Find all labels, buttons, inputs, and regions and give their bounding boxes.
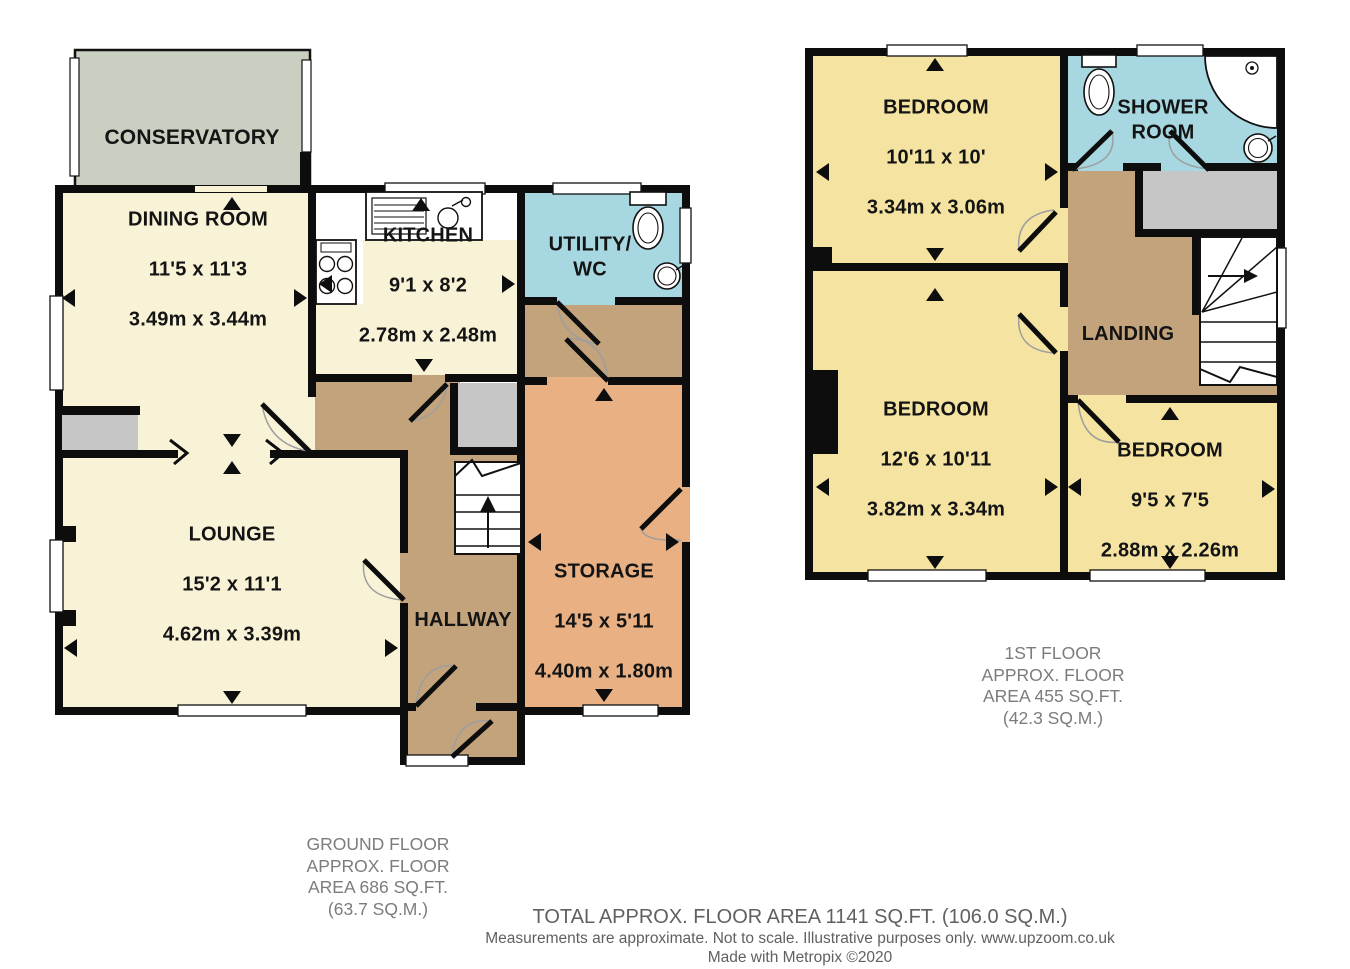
room-name: BEDROOM: [867, 96, 1005, 121]
room-dim-imperial: 14'5 x 5'11: [535, 610, 673, 635]
room-name: STORAGE: [535, 560, 673, 585]
room-dim-metric: 4.40m x 1.80m: [535, 660, 673, 685]
inner-hall-by-kitchen: [315, 375, 460, 457]
room-dim-imperial: 12'6 x 10'11: [867, 448, 1005, 473]
utility-top-window: [553, 183, 641, 194]
stairs-down-icon: [1200, 237, 1277, 385]
room-label-bedroom-1: BEDROOM 10'11 x 10' 3.34m x 3.06m: [867, 71, 1005, 246]
room-dim-imperial: 9'1 x 8'2: [359, 274, 497, 299]
room-label-shower-room: SHOWER ROOM: [1117, 71, 1208, 146]
footer: TOTAL APPROX. FLOOR AREA 1141 SQ.FT. (10…: [485, 904, 1114, 967]
room-name: BEDROOM: [867, 398, 1005, 423]
room-label-landing: LANDING: [1082, 297, 1175, 347]
room-name: DINING ROOM: [128, 208, 268, 233]
room-label-kitchen: KITCHEN 9'1 x 8'2 2.78m x 2.48m: [359, 199, 497, 374]
room-dim-metric: 4.62m x 3.39m: [163, 623, 301, 648]
room-dim-metric: 3.82m x 3.34m: [867, 498, 1005, 523]
room-dim-metric: 2.88m x 2.26m: [1101, 539, 1239, 564]
bedroom-2-window: [868, 570, 986, 581]
room-label-lounge: LOUNGE 15'2 x 11'1 4.62m x 3.39m: [163, 498, 301, 673]
room-dim-imperial: 9'5 x 7'5: [1101, 489, 1239, 514]
lounge-bay-window: [50, 540, 63, 612]
toilet-icon: [630, 192, 666, 249]
room-label-bedroom-3: BEDROOM 9'5 x 7'5 2.88m x 2.26m: [1101, 414, 1239, 589]
storage-side-opening: [682, 487, 690, 542]
room-dim-metric: 3.34m x 3.06m: [867, 196, 1005, 221]
room-dim-imperial: 11'5 x 11'3: [128, 258, 268, 283]
room-label-storage: STORAGE 14'5 x 5'11 4.40m x 1.80m: [535, 535, 673, 710]
room-label-bedroom-2: BEDROOM 12'6 x 10'11 3.82m x 3.34m: [867, 373, 1005, 548]
room-label-hallway: HALLWAY: [414, 583, 511, 633]
total-floor-area: TOTAL APPROX. FLOOR AREA 1141 SQ.FT. (10…: [485, 904, 1114, 930]
room-label-conservatory: CONSERVATORY: [104, 100, 279, 150]
room-dim-metric: 2.78m x 2.48m: [359, 324, 497, 349]
floorplan: CONSERVATORY DINING ROOM 11'5 x 11'3 3.4…: [0, 0, 1350, 969]
shower-room-window: [1137, 45, 1203, 56]
room-name: BEDROOM: [1101, 439, 1239, 464]
front-door-threshold: [406, 755, 468, 766]
room-name: SHOWER ROOM: [1117, 97, 1208, 144]
over-stairs-cupboard: [1143, 171, 1277, 231]
room-name: CONSERVATORY: [104, 126, 279, 149]
room-name: LOUNGE: [163, 523, 301, 548]
metropix-credit: Made with Metropix ©2020: [485, 949, 1114, 968]
utility-side-window: [680, 208, 691, 263]
lounge-window: [178, 705, 306, 716]
room-name: HALLWAY: [414, 609, 511, 631]
dining-bay-window: [50, 296, 63, 390]
ground-floor-caption: GROUND FLOOR APPROX. FLOOR AREA 686 SQ.F…: [307, 834, 450, 920]
room-label-utility-wc: UTILITY/ WC: [549, 208, 632, 283]
room-dim-imperial: 10'11 x 10': [867, 146, 1005, 171]
bedroom-1-window: [887, 45, 967, 56]
cupboard-block: [458, 383, 520, 447]
room-name: KITCHEN: [359, 224, 497, 249]
room-name: UTILITY/ WC: [549, 234, 632, 281]
first-floor-caption: 1ST FLOOR APPROX. FLOOR AREA 455 SQ.FT. …: [982, 643, 1125, 729]
hearth-block: [62, 415, 138, 450]
toilet-icon-2: [1082, 55, 1116, 115]
room-label-dining-room: DINING ROOM 11'5 x 11'3 3.49m x 3.44m: [128, 183, 268, 358]
disclaimer: Measurements are approximate. Not to sca…: [485, 930, 1114, 949]
room-dim-imperial: 15'2 x 11'1: [163, 573, 301, 598]
room-name: LANDING: [1082, 323, 1175, 345]
room-dim-metric: 3.49m x 3.44m: [128, 308, 268, 333]
stairs-up-icon: [455, 460, 521, 554]
hob-icon: [316, 240, 356, 304]
